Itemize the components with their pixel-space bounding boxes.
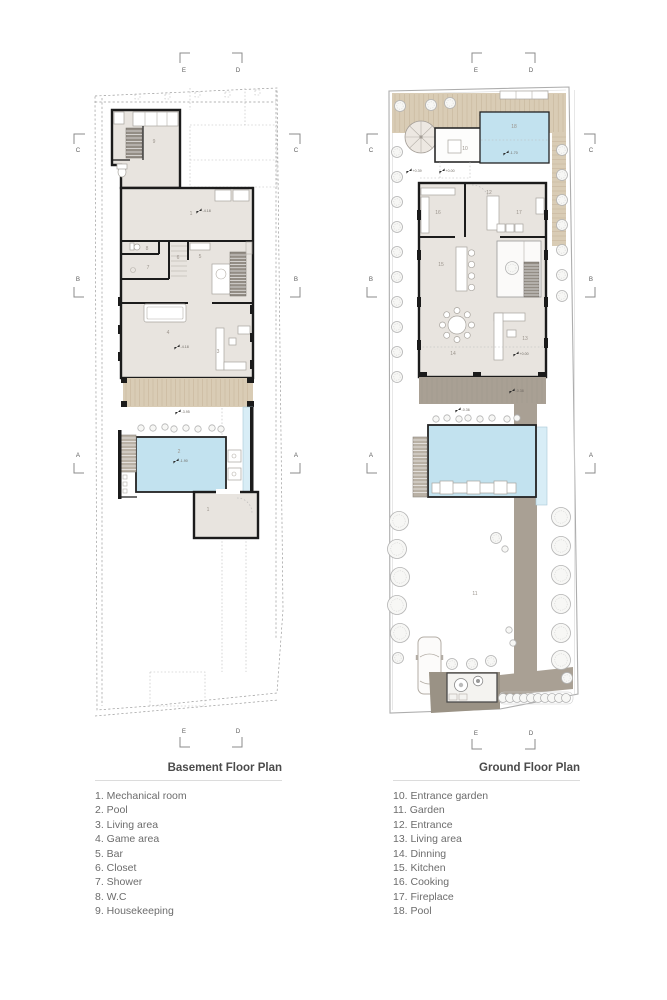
section-marker-D-bottom: D — [232, 728, 242, 747]
basement-caption: Basement Floor Plan 1. Mechanical room 2… — [95, 762, 282, 919]
basement-plan-title: Basement Floor Plan — [95, 762, 282, 781]
legend-item: 12. Entrance — [393, 818, 580, 832]
level-value: -0.38 — [516, 389, 524, 393]
section-letter: C — [589, 147, 594, 154]
room-label-kitchen: 15 — [438, 262, 444, 268]
section-letter: B — [589, 276, 593, 283]
basement-deck — [121, 377, 254, 407]
section-marker-E-bottom: E — [180, 728, 190, 747]
section-letter: C — [76, 147, 81, 154]
section-letter: D — [529, 730, 534, 737]
section-letter: C — [369, 147, 374, 154]
ground-main-pool — [413, 415, 547, 505]
section-letter: A — [369, 452, 374, 459]
ground-upper-pool — [480, 112, 549, 163]
section-marker-B-left: B — [367, 276, 377, 297]
room-label-living: 3 — [217, 349, 220, 355]
section-letter: D — [529, 67, 534, 74]
basement-legend: 1. Mechanical room 2. Pool 3. Living are… — [95, 789, 282, 919]
floor-plan-sheet: 9 1 8 7 6 5 4 3 2 1 -4.18 -4.18 -3.95 -1… — [0, 0, 667, 1000]
plant-icon — [138, 425, 144, 431]
ground-plan-drawing: 10 18 12 16 17 15 14 13 11 +0.39 +0.00 -… — [355, 35, 615, 760]
legend-item: 16. Cooking — [393, 875, 580, 889]
room-label-cooking: 16 — [435, 210, 441, 216]
legend-item: 6. Closet — [95, 861, 282, 875]
section-letter: A — [589, 452, 594, 459]
room-label-living: 13 — [522, 336, 528, 342]
room-label-fireplace: 17 — [516, 210, 522, 216]
room-label-dinning: 14 — [450, 351, 456, 357]
basement-pool-court — [118, 407, 254, 500]
plant-icon — [456, 416, 462, 422]
level-value: +0.00 — [446, 169, 455, 173]
room-label-mechanical: 1 — [190, 211, 193, 217]
section-marker-A-right: A — [290, 452, 300, 473]
section-letter: E — [182, 67, 186, 74]
room-label-pool: 18 — [511, 124, 517, 130]
legend-item: 9. Housekeeping — [95, 904, 282, 918]
basement-stairs — [230, 252, 246, 296]
section-marker-C-left: C — [74, 134, 85, 154]
section-marker-C-right: C — [289, 134, 300, 154]
room-label-bar: 5 — [199, 254, 202, 260]
plant-icon — [162, 424, 168, 430]
section-marker-A-right: A — [585, 452, 595, 473]
legend-item: 17. Fireplace — [393, 890, 580, 904]
tree-icon — [445, 98, 456, 109]
legend-item: 18. Pool — [393, 904, 580, 918]
section-marker-A-left: A — [367, 452, 377, 473]
section-marker-D-top: D — [232, 53, 242, 74]
room-label-garden: 11 — [472, 591, 477, 597]
room-label-entrance-garden: 10 — [462, 146, 468, 152]
legend-item: 3. Living area — [95, 818, 282, 832]
level-value: -1.70 — [510, 151, 518, 155]
plant-icon — [209, 425, 215, 431]
plant-icon — [444, 415, 450, 421]
section-marker-E-bottom: E — [472, 730, 482, 749]
plant-icon — [465, 415, 471, 421]
legend-item: 2. Pool — [95, 803, 282, 817]
section-marker-D-bottom: D — [525, 730, 535, 749]
section-letter: C — [294, 147, 299, 154]
section-marker-B-right: B — [290, 276, 300, 297]
planter-row — [138, 424, 224, 432]
section-letter: B — [369, 276, 373, 283]
plant-icon — [218, 426, 224, 432]
ground-legend: 10. Entrance garden 11. Garden 12. Entra… — [393, 789, 580, 919]
section-letter: A — [294, 452, 299, 459]
section-letter: B — [294, 276, 298, 283]
section-marker-C-right: C — [584, 134, 595, 154]
legend-item: 7. Shower — [95, 875, 282, 889]
tree-icon — [395, 101, 406, 112]
section-marker-E-top: E — [472, 53, 482, 74]
plant-icon — [195, 426, 201, 432]
level-value: -0.36 — [462, 408, 470, 412]
room-label-closet: 6 — [177, 255, 180, 261]
section-marker-A-left: A — [74, 452, 84, 473]
ground-plan-title: Ground Floor Plan — [393, 762, 580, 781]
section-marker-C-left: C — [367, 134, 378, 154]
section-letter: E — [474, 730, 478, 737]
room-label-entrance: 12 — [486, 190, 492, 196]
dining-table — [440, 308, 475, 343]
legend-item: 11. Garden — [393, 803, 580, 817]
level-value: +0.39 — [413, 169, 422, 173]
plant-icon — [433, 416, 439, 422]
housekeeping-stairs — [126, 128, 142, 158]
legend-item: 15. Kitchen — [393, 861, 580, 875]
section-marker-D-top: D — [525, 53, 535, 74]
ground-stairs — [497, 241, 541, 297]
basement-pool — [136, 437, 226, 492]
legend-item: 4. Game area — [95, 832, 282, 846]
basement-lower-room — [194, 489, 258, 538]
pool-table — [144, 304, 186, 322]
plant-icon — [489, 415, 495, 421]
ground-caption: Ground Floor Plan 10. Entrance garden 11… — [393, 762, 580, 919]
level-value: -3.95 — [182, 410, 190, 414]
basement-pool-stairs — [121, 435, 136, 472]
section-marker-B-left: B — [74, 276, 84, 297]
section-marker-E-top: E — [180, 53, 190, 74]
pool-stairs — [413, 437, 427, 497]
level-value: +0.00 — [520, 352, 529, 356]
room-label-housekeeping: 9 — [153, 139, 156, 145]
level-value: -4.18 — [181, 345, 189, 349]
plant-icon — [514, 415, 520, 421]
plant-icon — [477, 416, 483, 422]
basement-plan-drawing: 9 1 8 7 6 5 4 3 2 1 -4.18 -4.18 -3.95 -1… — [65, 35, 325, 760]
legend-item: 8. W.C — [95, 890, 282, 904]
section-letter: D — [236, 728, 241, 735]
ground-terrace — [419, 377, 546, 404]
spiral-stair — [405, 121, 437, 153]
entrance-slab — [429, 672, 500, 713]
section-letter: A — [76, 452, 81, 459]
section-letter: B — [76, 276, 80, 283]
section-marker-B-right: B — [585, 276, 595, 297]
section-letter: E — [182, 728, 186, 735]
plant-icon — [183, 425, 189, 431]
tree-icon — [426, 100, 437, 111]
level-value: -4.18 — [203, 209, 211, 213]
room-label-game: 4 — [167, 330, 170, 336]
plant-icon — [504, 416, 510, 422]
room-label-shower: 7 — [147, 265, 150, 271]
level-value: -1.90 — [180, 459, 188, 463]
legend-item: 5. Bar — [95, 847, 282, 861]
legend-item: 1. Mechanical room — [95, 789, 282, 803]
legend-item: 14. Dinning — [393, 847, 580, 861]
room-label-pool: 2 — [178, 449, 181, 455]
legend-item: 10. Entrance garden — [393, 789, 580, 803]
section-letter: D — [236, 67, 241, 74]
section-letter: E — [474, 67, 478, 74]
legend-item: 13. Living area — [393, 832, 580, 846]
room-label-wc: 8 — [146, 246, 149, 252]
plant-icon — [150, 425, 156, 431]
basement-building — [112, 110, 254, 378]
room-label-lower-room: 1 — [207, 507, 210, 513]
plant-icon — [171, 426, 177, 432]
